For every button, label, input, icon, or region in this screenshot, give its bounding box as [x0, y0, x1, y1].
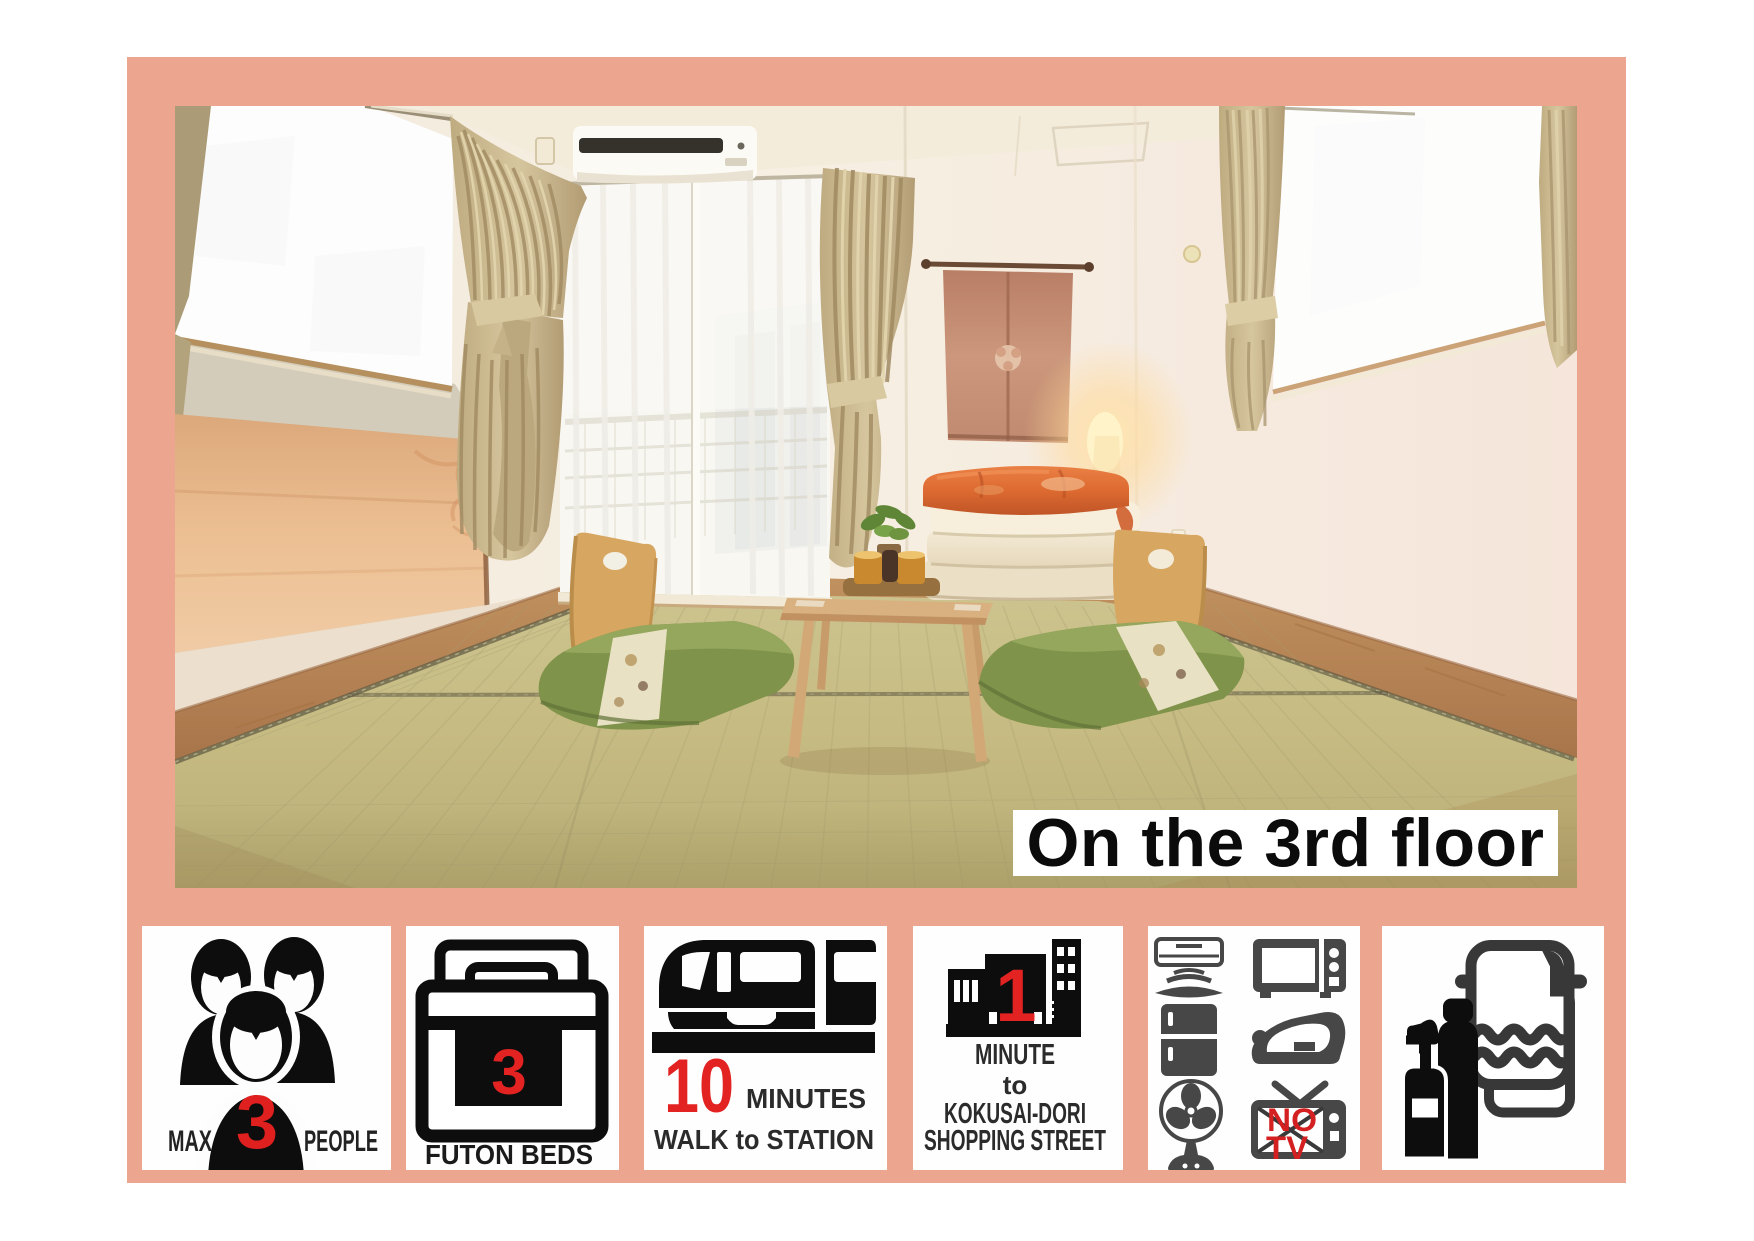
- svg-text:MINUTE: MINUTE: [975, 1039, 1055, 1071]
- svg-text:WALK to STATION: WALK to STATION: [654, 1124, 874, 1155]
- svg-text:TV: TV: [1266, 1130, 1309, 1166]
- svg-text:SHOPPING STREET: SHOPPING STREET: [924, 1125, 1106, 1157]
- svg-text:3: 3: [236, 1080, 278, 1165]
- svg-text:to: to: [1003, 1070, 1028, 1100]
- svg-text:1: 1: [995, 954, 1036, 1037]
- svg-text:PEOPLE: PEOPLE: [304, 1125, 378, 1158]
- svg-text:MINUTES: MINUTES: [746, 1083, 866, 1114]
- svg-text:FUTON BEDS: FUTON BEDS: [425, 1139, 593, 1170]
- svg-text:3: 3: [491, 1036, 527, 1108]
- svg-text:10: 10: [664, 1044, 734, 1129]
- svg-text:MAX: MAX: [168, 1125, 212, 1158]
